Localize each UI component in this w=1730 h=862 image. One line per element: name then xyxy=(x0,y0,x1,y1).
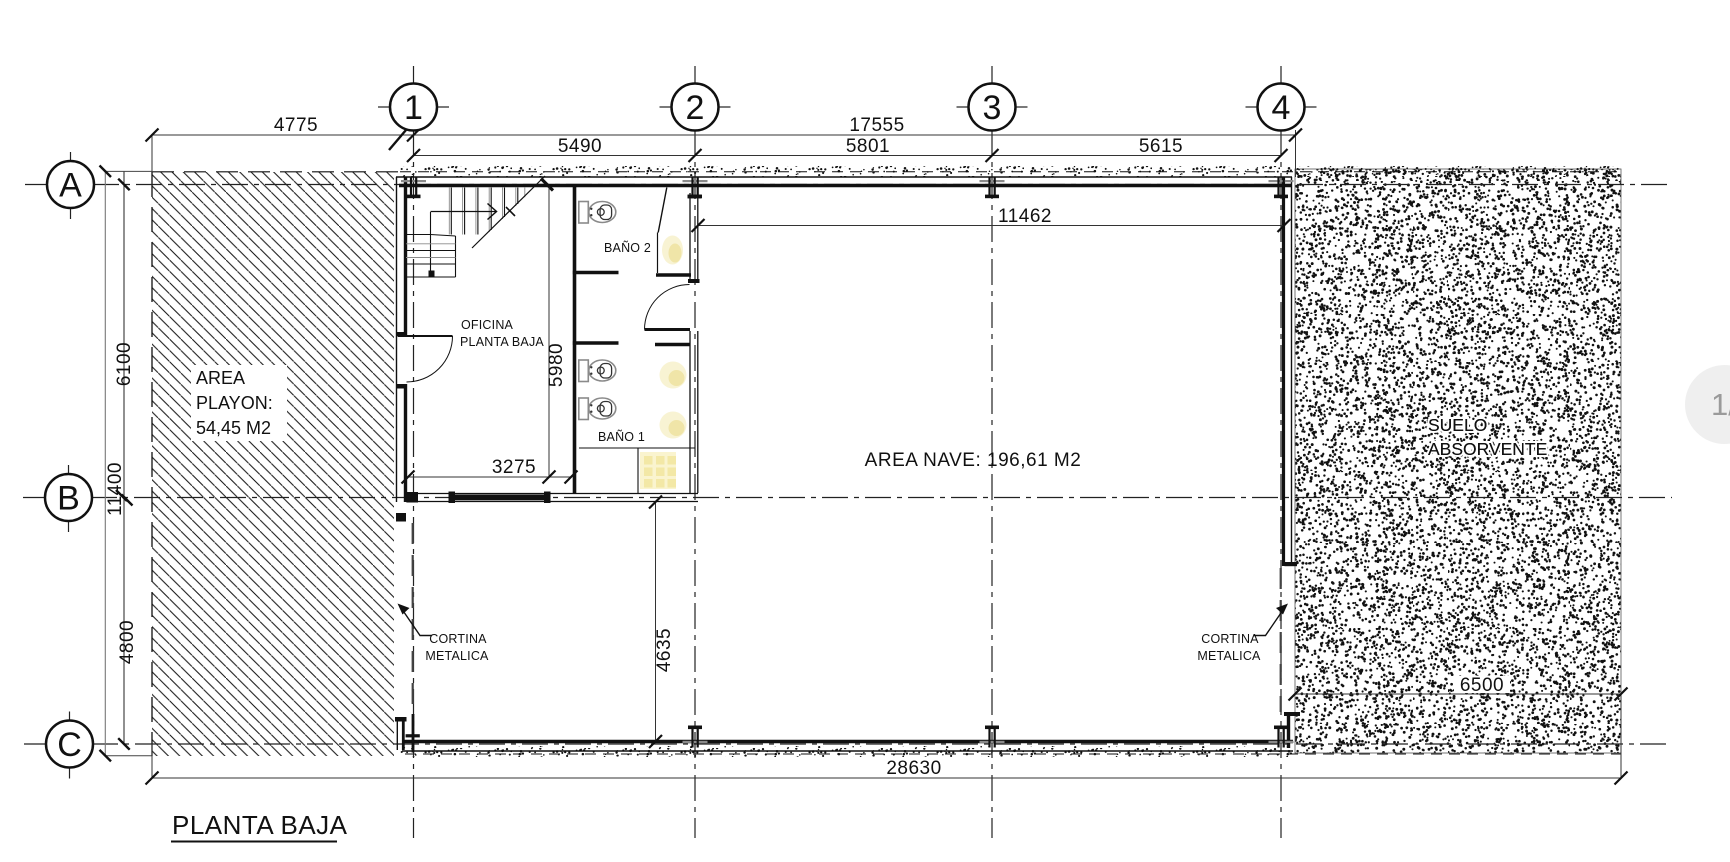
svg-text:6100: 6100 xyxy=(114,342,135,386)
svg-text:METALICA: METALICA xyxy=(425,649,489,663)
svg-text:PLAYON:: PLAYON: xyxy=(196,393,273,413)
svg-text:4800: 4800 xyxy=(117,620,138,664)
svg-text:17555: 17555 xyxy=(849,115,904,136)
svg-text:1/2: 1/2 xyxy=(1711,387,1730,422)
svg-text:6500: 6500 xyxy=(1460,675,1504,696)
svg-text:BAÑO 1: BAÑO 1 xyxy=(598,430,645,444)
svg-text:SUELO: SUELO xyxy=(1428,415,1487,435)
svg-text:PLANTA BAJA: PLANTA BAJA xyxy=(172,810,348,840)
svg-text:4635: 4635 xyxy=(654,628,675,672)
svg-text:AREA NAVE: 196,61 M2: AREA NAVE: 196,61 M2 xyxy=(865,450,1082,471)
svg-text:CORTINA: CORTINA xyxy=(429,632,487,646)
svg-text:5980: 5980 xyxy=(546,343,567,387)
svg-text:11400: 11400 xyxy=(105,462,126,516)
svg-text:METALICA: METALICA xyxy=(1197,649,1261,663)
svg-text:AREA: AREA xyxy=(196,368,245,388)
svg-text:28630: 28630 xyxy=(886,758,941,779)
svg-text:3275: 3275 xyxy=(492,457,536,478)
svg-text:A: A xyxy=(59,167,82,205)
svg-text:5801: 5801 xyxy=(846,136,890,157)
svg-text:ABSORVENTE: ABSORVENTE xyxy=(1428,439,1547,459)
svg-text:PLANTA BAJA: PLANTA BAJA xyxy=(460,335,544,349)
svg-text:5615: 5615 xyxy=(1139,136,1183,157)
svg-text:3: 3 xyxy=(983,89,1002,127)
svg-text:54,45 M2: 54,45 M2 xyxy=(196,418,271,438)
svg-text:C: C xyxy=(57,726,82,764)
svg-text:1: 1 xyxy=(404,89,423,127)
svg-text:BAÑO 2: BAÑO 2 xyxy=(604,241,651,255)
svg-text:11462: 11462 xyxy=(998,206,1052,227)
svg-text:4775: 4775 xyxy=(274,115,318,136)
svg-text:4: 4 xyxy=(1272,89,1291,127)
svg-text:OFICINA: OFICINA xyxy=(461,318,514,332)
svg-text:5490: 5490 xyxy=(558,136,602,157)
svg-text:B: B xyxy=(57,480,80,518)
svg-text:2: 2 xyxy=(686,89,705,127)
svg-text:CORTINA: CORTINA xyxy=(1201,632,1259,646)
